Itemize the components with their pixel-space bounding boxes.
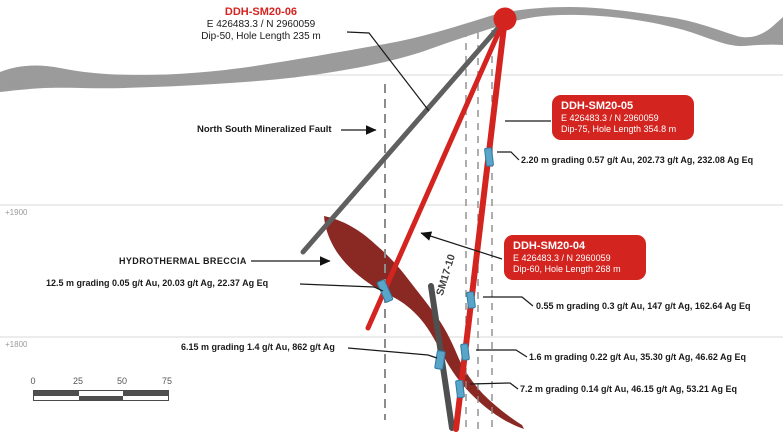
ddh-sm20-04-coords: E 426483.3 / N 2960059 (513, 253, 637, 264)
ddh-sm20-05-coords: E 426483.3 / N 2960059 (561, 113, 685, 124)
fault-dashed-lines (385, 30, 492, 433)
interval-marker-055 (467, 292, 476, 309)
leader-interval-220 (497, 152, 519, 160)
scale-bar: 0 25 50 75 (30, 376, 180, 404)
interval-annotation-615: 6.15 m grading 1.4 g/t Au, 862 g/t Ag (181, 342, 335, 352)
drillhole-sm20-05-trace (456, 18, 505, 429)
ddh-sm20-06-name: DDH-SM20-06 (175, 6, 347, 19)
interval-annotation-720: 7.2 m grading 0.14 g/t Au, 46.15 g/t Ag,… (520, 384, 737, 394)
elevation-label-1900: +1900 (5, 208, 27, 217)
ddh-sm20-04-callout: DDH-SM20-04 E 426483.3 / N 2960059 Dip-6… (504, 235, 646, 280)
arrow-sm20-04 (421, 233, 502, 259)
interval-marker-220 (484, 148, 493, 167)
scale-segment (34, 396, 79, 401)
scale-segment (123, 396, 168, 401)
scale-tick-25: 25 (73, 376, 83, 386)
interval-annotation-055: 0.55 m grading 0.3 g/t Au, 147 g/t Ag, 1… (536, 301, 751, 311)
leader-interval-160 (476, 350, 527, 357)
elevation-label-2000: +2000 (5, 80, 27, 89)
ddh-sm20-04-spec: Dip-60, Hole Length 268 m (513, 264, 637, 275)
breccia-label: HYDROTHERMAL BRECCIA (119, 256, 247, 266)
scale-tick-0: 0 (30, 376, 35, 386)
scale-tick-75: 75 (162, 376, 172, 386)
interval-annotation-220: 2.20 m grading 0.57 g/t Au, 202.73 g/t A… (521, 155, 753, 165)
drill-collar-marker (494, 8, 517, 31)
interval-marker-160 (461, 344, 470, 361)
scale-bar-strip (33, 390, 169, 401)
section-graphics (0, 0, 783, 436)
ddh-sm20-06-label: DDH-SM20-06 E 426483.3 / N 2960059 Dip-5… (175, 6, 347, 43)
scale-tick-50: 50 (117, 376, 127, 386)
terrain-surface (0, 7, 783, 92)
ddh-sm20-04-name: DDH-SM20-04 (513, 240, 637, 253)
leader-interval-055 (483, 297, 533, 306)
fault-label: North South Mineralized Fault (197, 124, 332, 135)
hydrothermal-breccia-body (324, 216, 524, 429)
interval-marker-720 (455, 380, 464, 398)
ddh-sm20-05-callout: DDH-SM20-05 E 426483.3 / N 2960059 Dip-7… (552, 95, 694, 140)
scale-segment (79, 396, 124, 401)
elevation-label-1800: +1800 (5, 340, 27, 349)
leader-interval-125 (300, 284, 383, 291)
leader-interval-615 (348, 348, 437, 358)
ddh-sm20-06-coords: E 426483.3 / N 2960059 (175, 19, 347, 31)
interval-annotation-160: 1.6 m grading 0.22 g/t Au, 35.30 g/t Ag,… (529, 352, 746, 362)
interval-annotation-125: 12.5 m grading 0.05 g/t Au, 20.03 g/t Ag… (46, 278, 268, 288)
ddh-sm20-05-spec: Dip-75, Hole Length 354.8 m (561, 124, 685, 135)
ddh-sm20-06-spec: Dip-50, Hole Length 235 m (175, 31, 347, 43)
leader-lines (251, 32, 551, 389)
cross-section-diagram: +2000 +1900 +1800 DDH-SM20-06 E 426483.3… (0, 0, 783, 436)
ddh-sm20-05-name: DDH-SM20-05 (561, 100, 685, 113)
